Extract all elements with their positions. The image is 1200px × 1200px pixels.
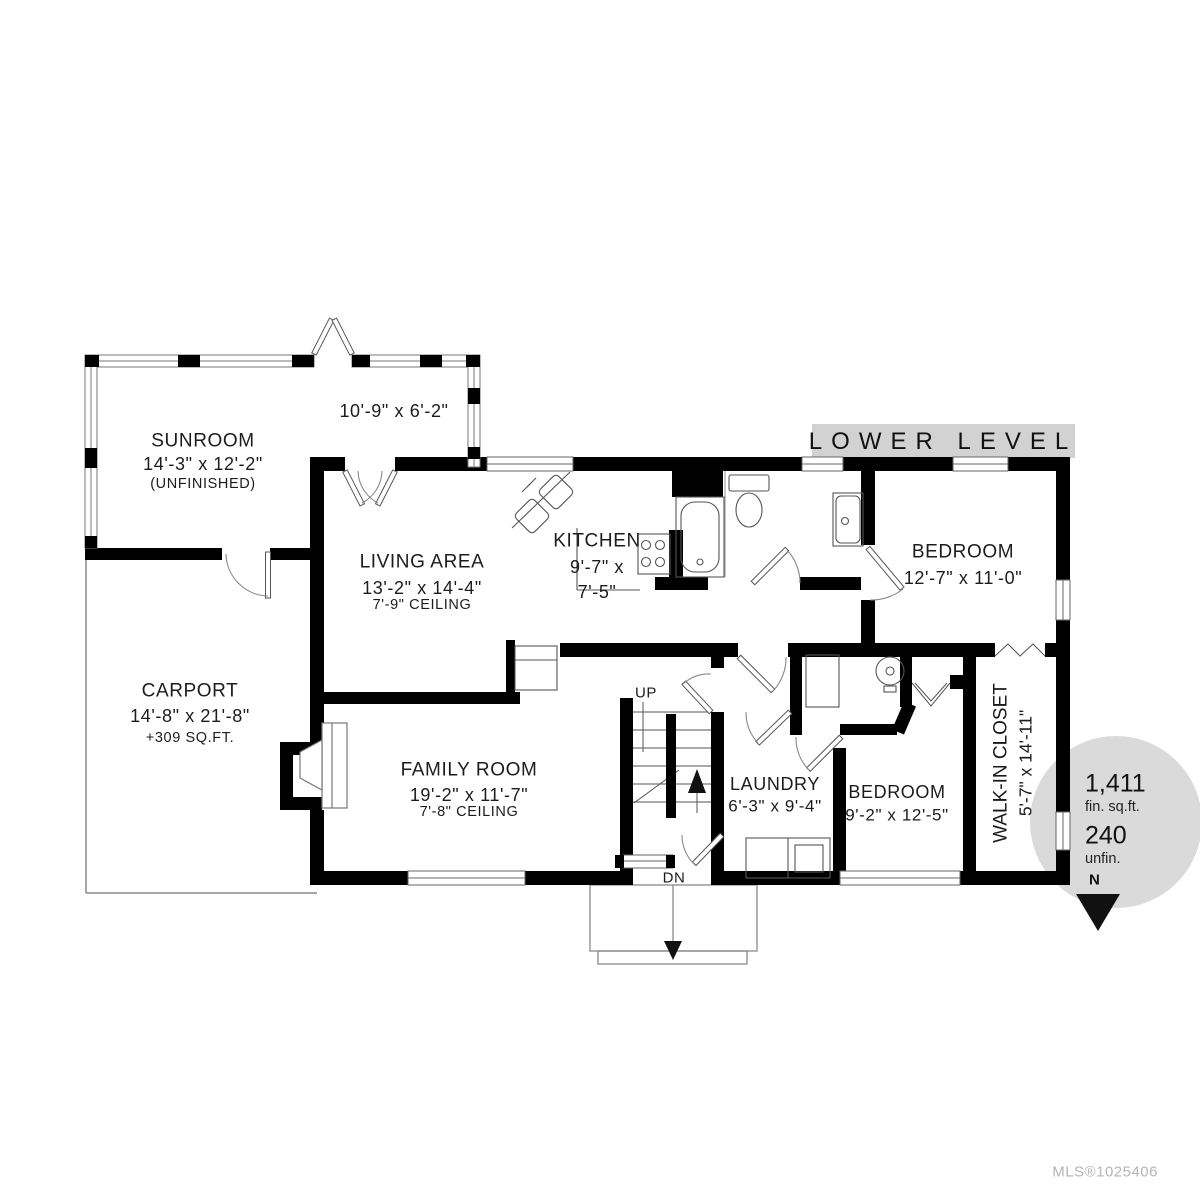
stairs xyxy=(633,702,711,818)
bedroom1-dims: 12'-7" x 11'-0" xyxy=(904,569,1022,587)
mls-number: MLS®1025406 xyxy=(1052,1164,1158,1181)
finished-sqft-label: fin. sq.ft. xyxy=(1085,799,1140,815)
angled-wall xyxy=(898,704,910,732)
family-room-dims: 19'-2" x 11'-7" xyxy=(410,786,528,804)
vanity-sink xyxy=(833,493,863,546)
water-heater xyxy=(876,657,904,692)
family-room-ceiling: 7'-8" CEILING xyxy=(420,805,519,820)
stairs-up-arrow xyxy=(688,769,706,793)
living-area-ceiling: 7'-9" CEILING xyxy=(373,598,472,613)
sunroom-label: SUNROOM xyxy=(151,432,254,451)
floor-plan: LOWER LEVEL 10'-9" x 6'-2" SUNROOM 14'-3… xyxy=(0,0,1200,1200)
laundry-dims: 6'-3" x 9'-4" xyxy=(728,798,821,815)
sunroom-window-walls xyxy=(85,355,480,548)
laundry-label: LAUNDRY xyxy=(730,775,820,793)
hearth xyxy=(300,723,347,808)
bedroom1-label: BEDROOM xyxy=(912,543,1014,562)
stove xyxy=(638,534,670,574)
unfinished-sqft-value: 240 xyxy=(1085,822,1127,851)
bedroom2-label: BEDROOM xyxy=(848,783,945,801)
kitchen-label: KITCHEN xyxy=(553,532,641,551)
freezer xyxy=(806,655,839,707)
walkin-closet-label: WALK-IN CLOSET xyxy=(988,683,1014,843)
living-area-label: LIVING AREA xyxy=(360,553,485,572)
bedroom2-dims: 9'-2" x 12'-5" xyxy=(845,807,949,824)
carport-note: +309 SQ.FT. xyxy=(146,731,234,746)
level-banner-title: LOWER LEVEL xyxy=(809,430,1077,454)
sunroom-dims: 14'-3" x 12'-2" xyxy=(143,455,263,473)
kitchen-dims-1: 9'-7" x xyxy=(570,558,624,576)
carport-dims: 14'-8" x 21'-8" xyxy=(130,707,250,725)
carport-label: CARPORT xyxy=(142,682,239,701)
stairs-down-label: DN xyxy=(663,871,686,886)
deck-dims: 10'-9" x 6'-2" xyxy=(339,402,448,420)
living-area-dims: 13'-2" x 14'-4" xyxy=(362,579,482,597)
north-arrow xyxy=(1076,894,1120,931)
sunroom-note: (UNFINISHED) xyxy=(150,477,255,492)
kitchen-dims-2: 7'-5" xyxy=(578,583,617,601)
walkin-closet-dims: 5'-7" x 14'-11" xyxy=(1014,683,1038,843)
toilet xyxy=(729,475,769,527)
unfinished-sqft-label: unfin. xyxy=(1085,851,1120,867)
finished-sqft-value: 1,411 xyxy=(1085,770,1146,799)
stairs-up-label: UP xyxy=(635,686,657,701)
family-room-label: FAMILY ROOM xyxy=(401,761,538,780)
north-label: N xyxy=(1089,872,1100,889)
bathtub xyxy=(676,497,724,577)
walkin-closet-block: WALK-IN CLOSET 5'-7" x 14'-11" xyxy=(988,683,1037,843)
cabinet xyxy=(515,646,557,690)
